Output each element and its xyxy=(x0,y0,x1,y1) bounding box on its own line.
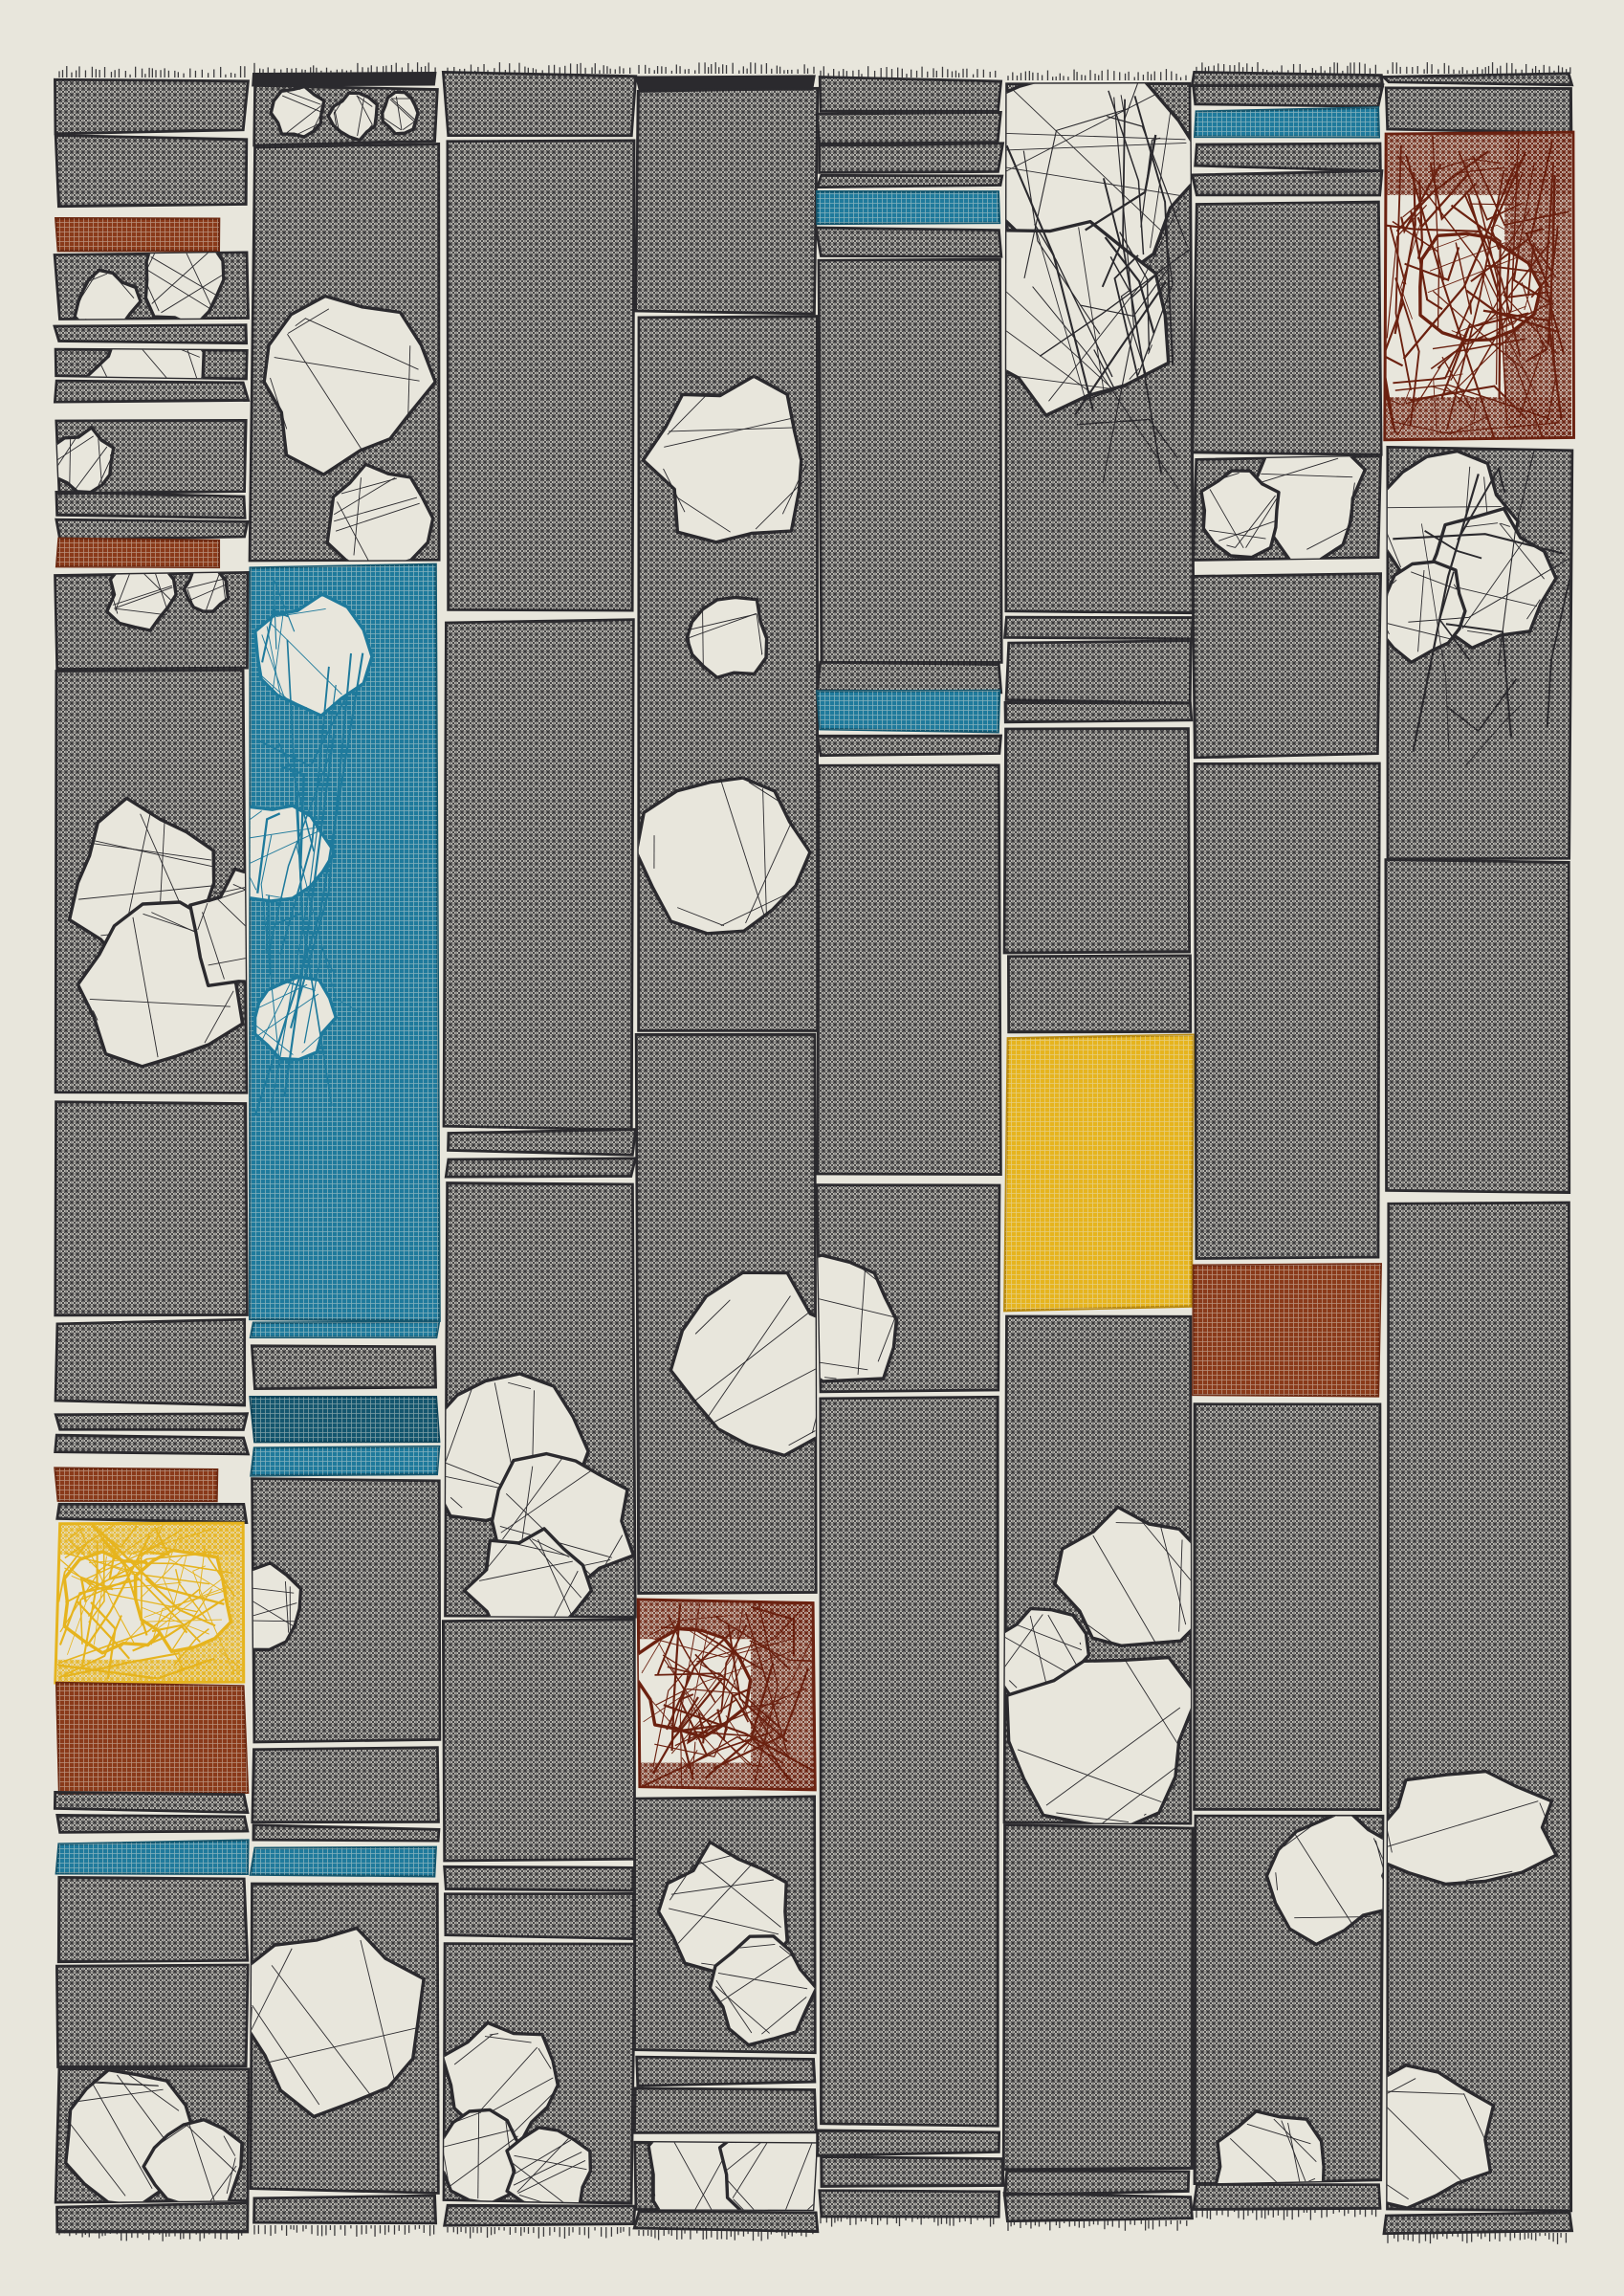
hatch-panel xyxy=(1194,2184,1380,2219)
hatch-panel xyxy=(1193,574,1381,758)
hatch-panel xyxy=(445,2205,635,2239)
hatch-panel xyxy=(637,2057,815,2086)
hatch-panel xyxy=(634,2088,816,2132)
hatch-panel xyxy=(443,1620,634,1861)
hatch-panel xyxy=(52,420,246,494)
hatch-panel xyxy=(1194,448,1381,562)
hatch-panel xyxy=(636,317,817,1031)
hatch-panel xyxy=(416,1183,635,1642)
hatch-panel xyxy=(55,66,248,134)
rust-panel xyxy=(56,539,219,567)
hatch-panel xyxy=(443,62,635,136)
hatch-panel xyxy=(449,1130,636,1156)
hatch-panel xyxy=(58,1877,248,1961)
hatch-panel xyxy=(56,519,248,540)
hatch-panel xyxy=(636,1034,848,1593)
hatch-panel xyxy=(1383,62,1571,85)
hatch-panel xyxy=(816,228,1001,256)
hatch-panel xyxy=(252,62,436,86)
hatch-panel xyxy=(55,237,248,333)
hatch-panel xyxy=(1196,143,1381,170)
blue-panel xyxy=(1195,107,1378,137)
hatch-panel xyxy=(817,662,1000,693)
hatch-panel xyxy=(55,1435,249,1454)
hatch-panel xyxy=(250,143,439,572)
hatch-panel xyxy=(634,2212,818,2241)
hatch-panel xyxy=(56,492,245,518)
hatch-panel xyxy=(445,1893,633,1938)
hatch-panel xyxy=(1386,860,1569,1193)
blue-panel xyxy=(251,1322,439,1337)
column-8 xyxy=(1352,62,1574,2244)
rust-panel xyxy=(56,1683,248,1794)
hatch-panel xyxy=(822,2156,1003,2186)
generative-art-svg xyxy=(0,0,1624,2296)
column-2 xyxy=(217,62,440,2237)
hatch-panel xyxy=(1005,617,1194,639)
hatch-panel xyxy=(446,1159,635,1177)
hatch-panel xyxy=(1193,171,1382,195)
hatch-panel xyxy=(57,1815,248,1832)
hatch-panel xyxy=(57,2203,248,2241)
blue-panel xyxy=(251,1847,436,1876)
artwork-canvas xyxy=(0,0,1624,2296)
hatch-panel xyxy=(55,136,247,207)
hatch-panel xyxy=(238,1884,439,2193)
column-4 xyxy=(634,62,848,2244)
hatch-panel xyxy=(55,325,247,343)
hatch-panel xyxy=(1386,88,1571,133)
hatch-panel xyxy=(444,620,633,1130)
hatch-panel xyxy=(55,1319,245,1405)
hatch-panel xyxy=(1005,702,1192,721)
hatch-panel xyxy=(634,1797,816,2053)
hatch-panel xyxy=(817,175,1001,187)
hatch-panel xyxy=(818,765,1001,1175)
hatch-panel xyxy=(217,1479,440,1742)
hatch-panel xyxy=(448,141,634,610)
hatch-panel xyxy=(427,1944,635,2218)
hatch-panel xyxy=(1003,1825,1193,2170)
hatch-panel xyxy=(1008,956,1190,1032)
hatch-panel xyxy=(253,1825,439,1841)
hatch-panel xyxy=(821,1397,999,2126)
hatch-panel xyxy=(252,1748,439,1822)
hatch-panel xyxy=(636,88,818,314)
hatch-panel xyxy=(252,1346,435,1389)
hatch-panel xyxy=(55,1102,248,1315)
blue-panel xyxy=(817,191,999,224)
hatch-panel xyxy=(1004,729,1190,953)
hatch-panel xyxy=(818,2130,999,2155)
hatch-panel xyxy=(57,1504,247,1522)
hatch-panel xyxy=(1004,2171,1189,2195)
column-7 xyxy=(1192,62,1396,2220)
rust-panel xyxy=(55,218,219,251)
maroon-panel xyxy=(637,1600,815,1790)
hatch-panel xyxy=(445,1866,633,1890)
blue-panel xyxy=(252,1446,439,1475)
hatch-panel xyxy=(1192,62,1382,86)
hatch-panel xyxy=(1195,1404,1381,1810)
hatch-panel xyxy=(995,1316,1213,1829)
hatch-panel xyxy=(820,66,1000,111)
rust-panel xyxy=(55,1468,217,1501)
maroon-panel xyxy=(1378,132,1573,440)
hatch-panel xyxy=(820,2191,999,2227)
column-3 xyxy=(416,62,636,2239)
hatch-panel xyxy=(1352,1203,1571,2211)
hatch-panel xyxy=(55,1792,248,1812)
teal-dark-panel xyxy=(251,1397,439,1442)
hatch-panel xyxy=(55,2068,249,2209)
hatch-panel xyxy=(1006,641,1191,703)
yellow-panel xyxy=(1004,1035,1193,1311)
yellow-panel xyxy=(54,1521,246,1683)
blue-panel xyxy=(56,1841,248,1874)
hatch-panel xyxy=(1384,2213,1572,2244)
hatch-panel xyxy=(1380,447,1572,858)
blue-panel xyxy=(817,691,999,732)
hatch-panel xyxy=(1195,763,1379,1258)
blue-panel xyxy=(224,564,439,1321)
hatch-panel xyxy=(1193,202,1381,454)
hatch-panel xyxy=(254,85,438,145)
hatch-panel xyxy=(817,112,1000,143)
hatch-panel xyxy=(635,62,816,91)
hatch-panel xyxy=(819,259,1001,662)
hatch-panel xyxy=(55,1414,247,1430)
hatch-panel xyxy=(56,1965,248,2066)
hatch-panel xyxy=(1194,85,1383,107)
hatch-panel xyxy=(1004,2194,1192,2231)
hatch-panel xyxy=(817,736,1000,756)
hatch-panel xyxy=(254,2196,436,2237)
hatch-panel xyxy=(1195,1810,1396,2220)
hatch-panel xyxy=(55,557,249,670)
hatch-panel xyxy=(820,143,1003,172)
hatch-panel xyxy=(55,381,248,402)
rust-panel xyxy=(1193,1264,1380,1396)
